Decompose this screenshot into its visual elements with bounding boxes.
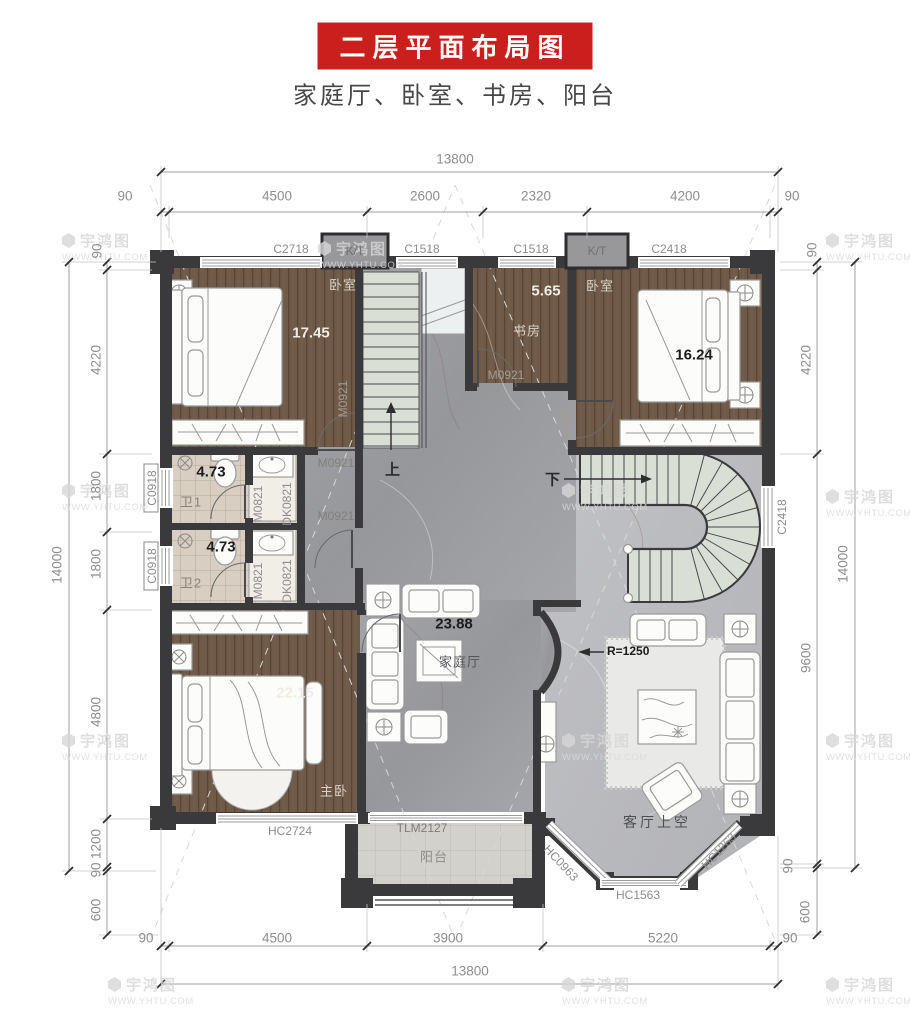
stair-up-label: 上 [385,459,401,480]
dim-right-seg: 600 [798,901,813,924]
room-area-bath1: 4.73 [196,464,225,481]
room-area-bedroom-tl: 17.45 [292,325,330,342]
dim-right-seg: 90 [805,242,820,257]
dim-left-seg: 90 [89,862,104,877]
dim-top-seg: 90 [784,189,799,204]
bed-top-left [166,280,282,406]
room-name-bath2: 卫2 [180,573,202,592]
dim-bottom-seg: 5220 [648,931,678,946]
dim-top-total: 13800 [436,152,474,167]
dim-top-seg: 2320 [521,189,551,204]
door-label: M0821 [251,486,265,523]
cabinet-label: DK0821 [280,559,294,602]
radius-note: R=1250 [607,644,649,658]
window-label: C1518 [513,242,548,256]
dim-left-seg: 1200 [89,829,104,859]
window-label: C0918 [145,548,159,583]
page-subtitle: 家庭厅、卧室、书房、阳台 [293,76,617,111]
window-label: C2718 [273,242,308,256]
window-label: C2418 [775,499,789,534]
dim-left-seg: 1800 [89,549,104,579]
dim-right-seg: 90 [781,858,796,873]
room-name-balcony: 阳台 [420,847,448,866]
ac-platform-label: K/T [588,244,607,258]
room-area-family-hall: 23.88 [435,616,473,633]
room-area-bath2: 4.73 [206,539,235,556]
room-name-bedroom-tl: 卧室 [329,275,357,294]
door-label: M0921 [336,381,350,418]
room-area-bedroom-tr: 16.24 [675,347,713,364]
door-label: M0821 [251,563,265,600]
door-label: M0921 [488,368,525,382]
dim-right-seg: 9600 [799,643,814,673]
door-label: M0921 [318,509,355,523]
room-name-bedroom-tr: 卧室 [586,276,614,295]
ac-platform-label: K/T [346,244,365,258]
room-area-master: 22.15 [276,685,314,702]
dim-left-total: 14000 [50,546,65,584]
dim-top-seg: 90 [117,189,132,204]
cabinet-label: DK0821 [280,482,294,525]
dim-left-seg: 4220 [89,345,104,375]
window-label: HC1563 [616,888,660,902]
dim-top-seg: 4200 [670,189,700,204]
dim-left-seg: 600 [89,899,104,922]
room-name-family-hall: 家庭厅 [439,652,481,671]
dim-left-seg: 1800 [89,471,104,501]
stair-down-label: 下 [545,469,561,490]
window-label: HC2724 [268,824,312,838]
room-name-master: 主卧 [320,781,348,800]
dim-right-seg: 4220 [799,345,814,375]
wardrobe-top-right [620,420,760,446]
dim-left-seg: 90 [90,243,105,258]
door-label: M0921 [318,456,355,470]
dim-top-seg: 2600 [410,189,440,204]
dim-bottom-total: 13800 [451,964,489,979]
dim-left-seg: 4800 [89,697,104,727]
room-name-bath1: 卫1 [180,492,202,511]
room-area-study: 5.65 [531,283,560,300]
room-name-study: 书房 [513,321,541,340]
door-label: M0921 [559,402,573,439]
room-name-living-void: 客厅上空 [623,812,691,832]
wardrobe-top-left [172,420,304,445]
window-label: C2418 [651,242,686,256]
page-title: 二层平面布局图 [317,23,592,70]
door-label: TLM2127 [397,821,448,835]
dim-bottom-seg: 90 [782,931,797,946]
floor-plan-page: 二层平面布局图 家庭厅、卧室、书房、阳台 [0,0,910,1031]
dim-bottom-seg: 3900 [433,931,463,946]
window-label: C0918 [145,470,159,505]
window-label: C1518 [404,242,439,256]
dim-bottom-seg: 90 [138,931,153,946]
dim-bottom-seg: 4500 [262,931,292,946]
dim-right-total: 14000 [836,545,851,583]
master-closet [170,611,308,634]
dim-top-seg: 4500 [262,189,292,204]
